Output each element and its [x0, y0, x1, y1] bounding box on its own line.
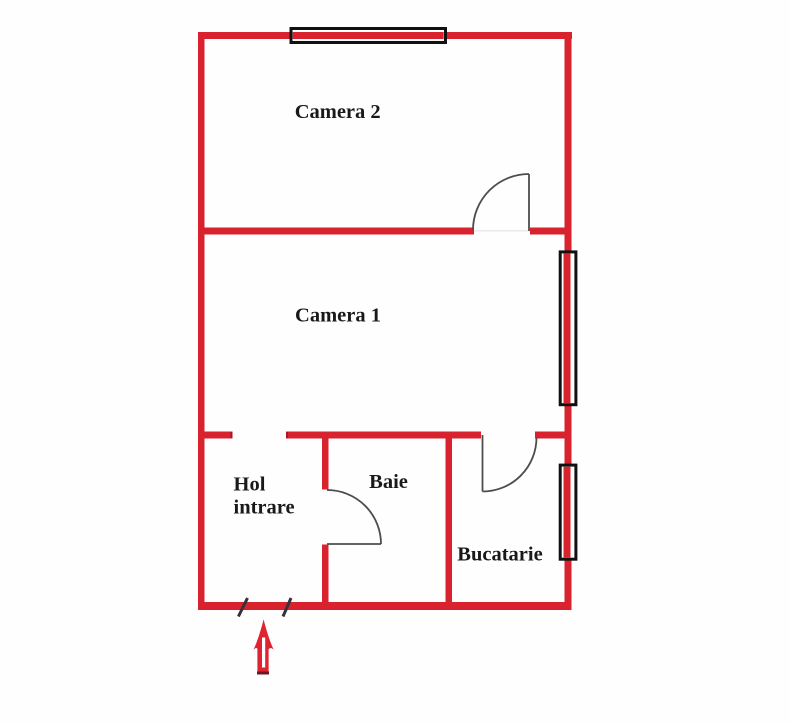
svg-text:Camera 2: Camera 2: [295, 101, 381, 123]
svg-text:Hol: Hol: [234, 474, 266, 496]
svg-text:Bucatarie: Bucatarie: [457, 544, 542, 566]
svg-text:Camera 1: Camera 1: [295, 305, 381, 327]
svg-text:Baie: Baie: [369, 471, 408, 493]
svg-text:intrare: intrare: [234, 497, 295, 519]
